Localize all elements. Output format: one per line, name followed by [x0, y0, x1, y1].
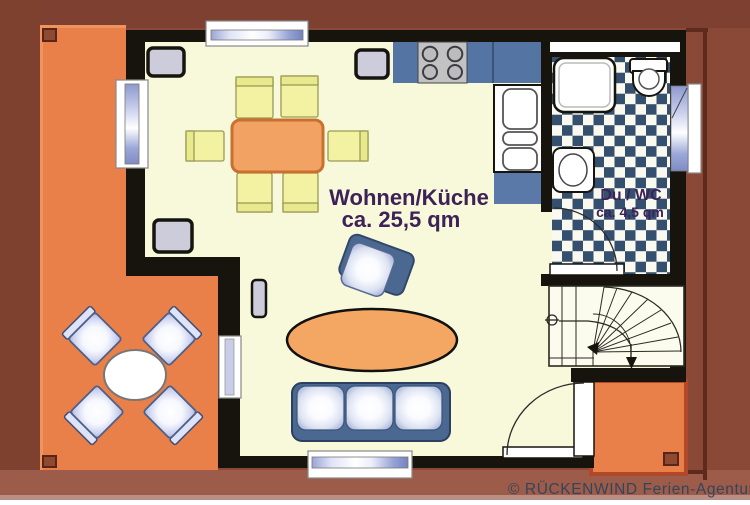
- svg-text:ca. 25,5 qm: ca. 25,5 qm: [342, 207, 461, 232]
- svg-text:Du / WC: Du / WC: [600, 187, 662, 204]
- svg-text:ca. 4,5 qm: ca. 4,5 qm: [596, 204, 664, 220]
- svg-text:© RÜCKENWIND Ferien-Agentur: © RÜCKENWIND Ferien-Agentur: [508, 480, 750, 498]
